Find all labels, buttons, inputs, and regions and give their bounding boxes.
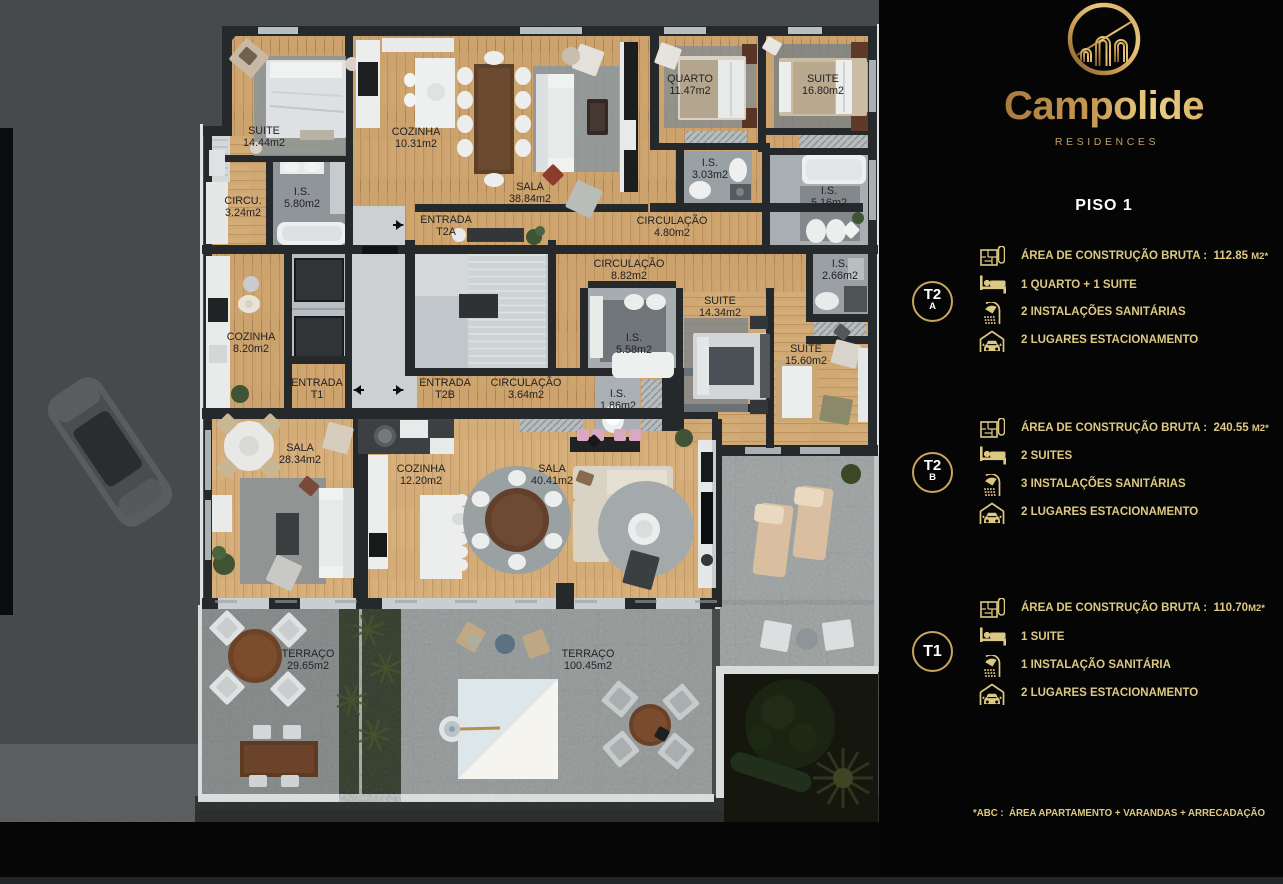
svg-text:SUITE14.44m2: SUITE14.44m2	[243, 125, 285, 149]
svg-text:CIRCU.3.24m2: CIRCU.3.24m2	[224, 195, 261, 219]
svg-text:QUARTO11.47m2: QUARTO11.47m2	[667, 73, 713, 97]
svg-text:SUITE14.34m2: SUITE14.34m2	[699, 295, 741, 319]
svg-text:COZINHA8.20m2: COZINHA8.20m2	[227, 331, 276, 355]
svg-text:RESIDENCES: RESIDENCES	[1055, 136, 1159, 148]
svg-text:TERRAÇO29.65m2: TERRAÇO29.65m2	[282, 648, 335, 672]
svg-text:COZINHA10.31m2: COZINHA10.31m2	[392, 126, 441, 150]
svg-text:SUITE16.80m2: SUITE16.80m2	[802, 73, 844, 97]
svg-text:COZINHA12.20m2: COZINHA12.20m2	[397, 463, 446, 487]
svg-text:TERRAÇO100.45m2: TERRAÇO100.45m2	[562, 648, 615, 672]
svg-text:Campolide: Campolide	[1004, 84, 1204, 128]
svg-text:SUITE15.60m2: SUITE15.60m2	[785, 343, 827, 367]
